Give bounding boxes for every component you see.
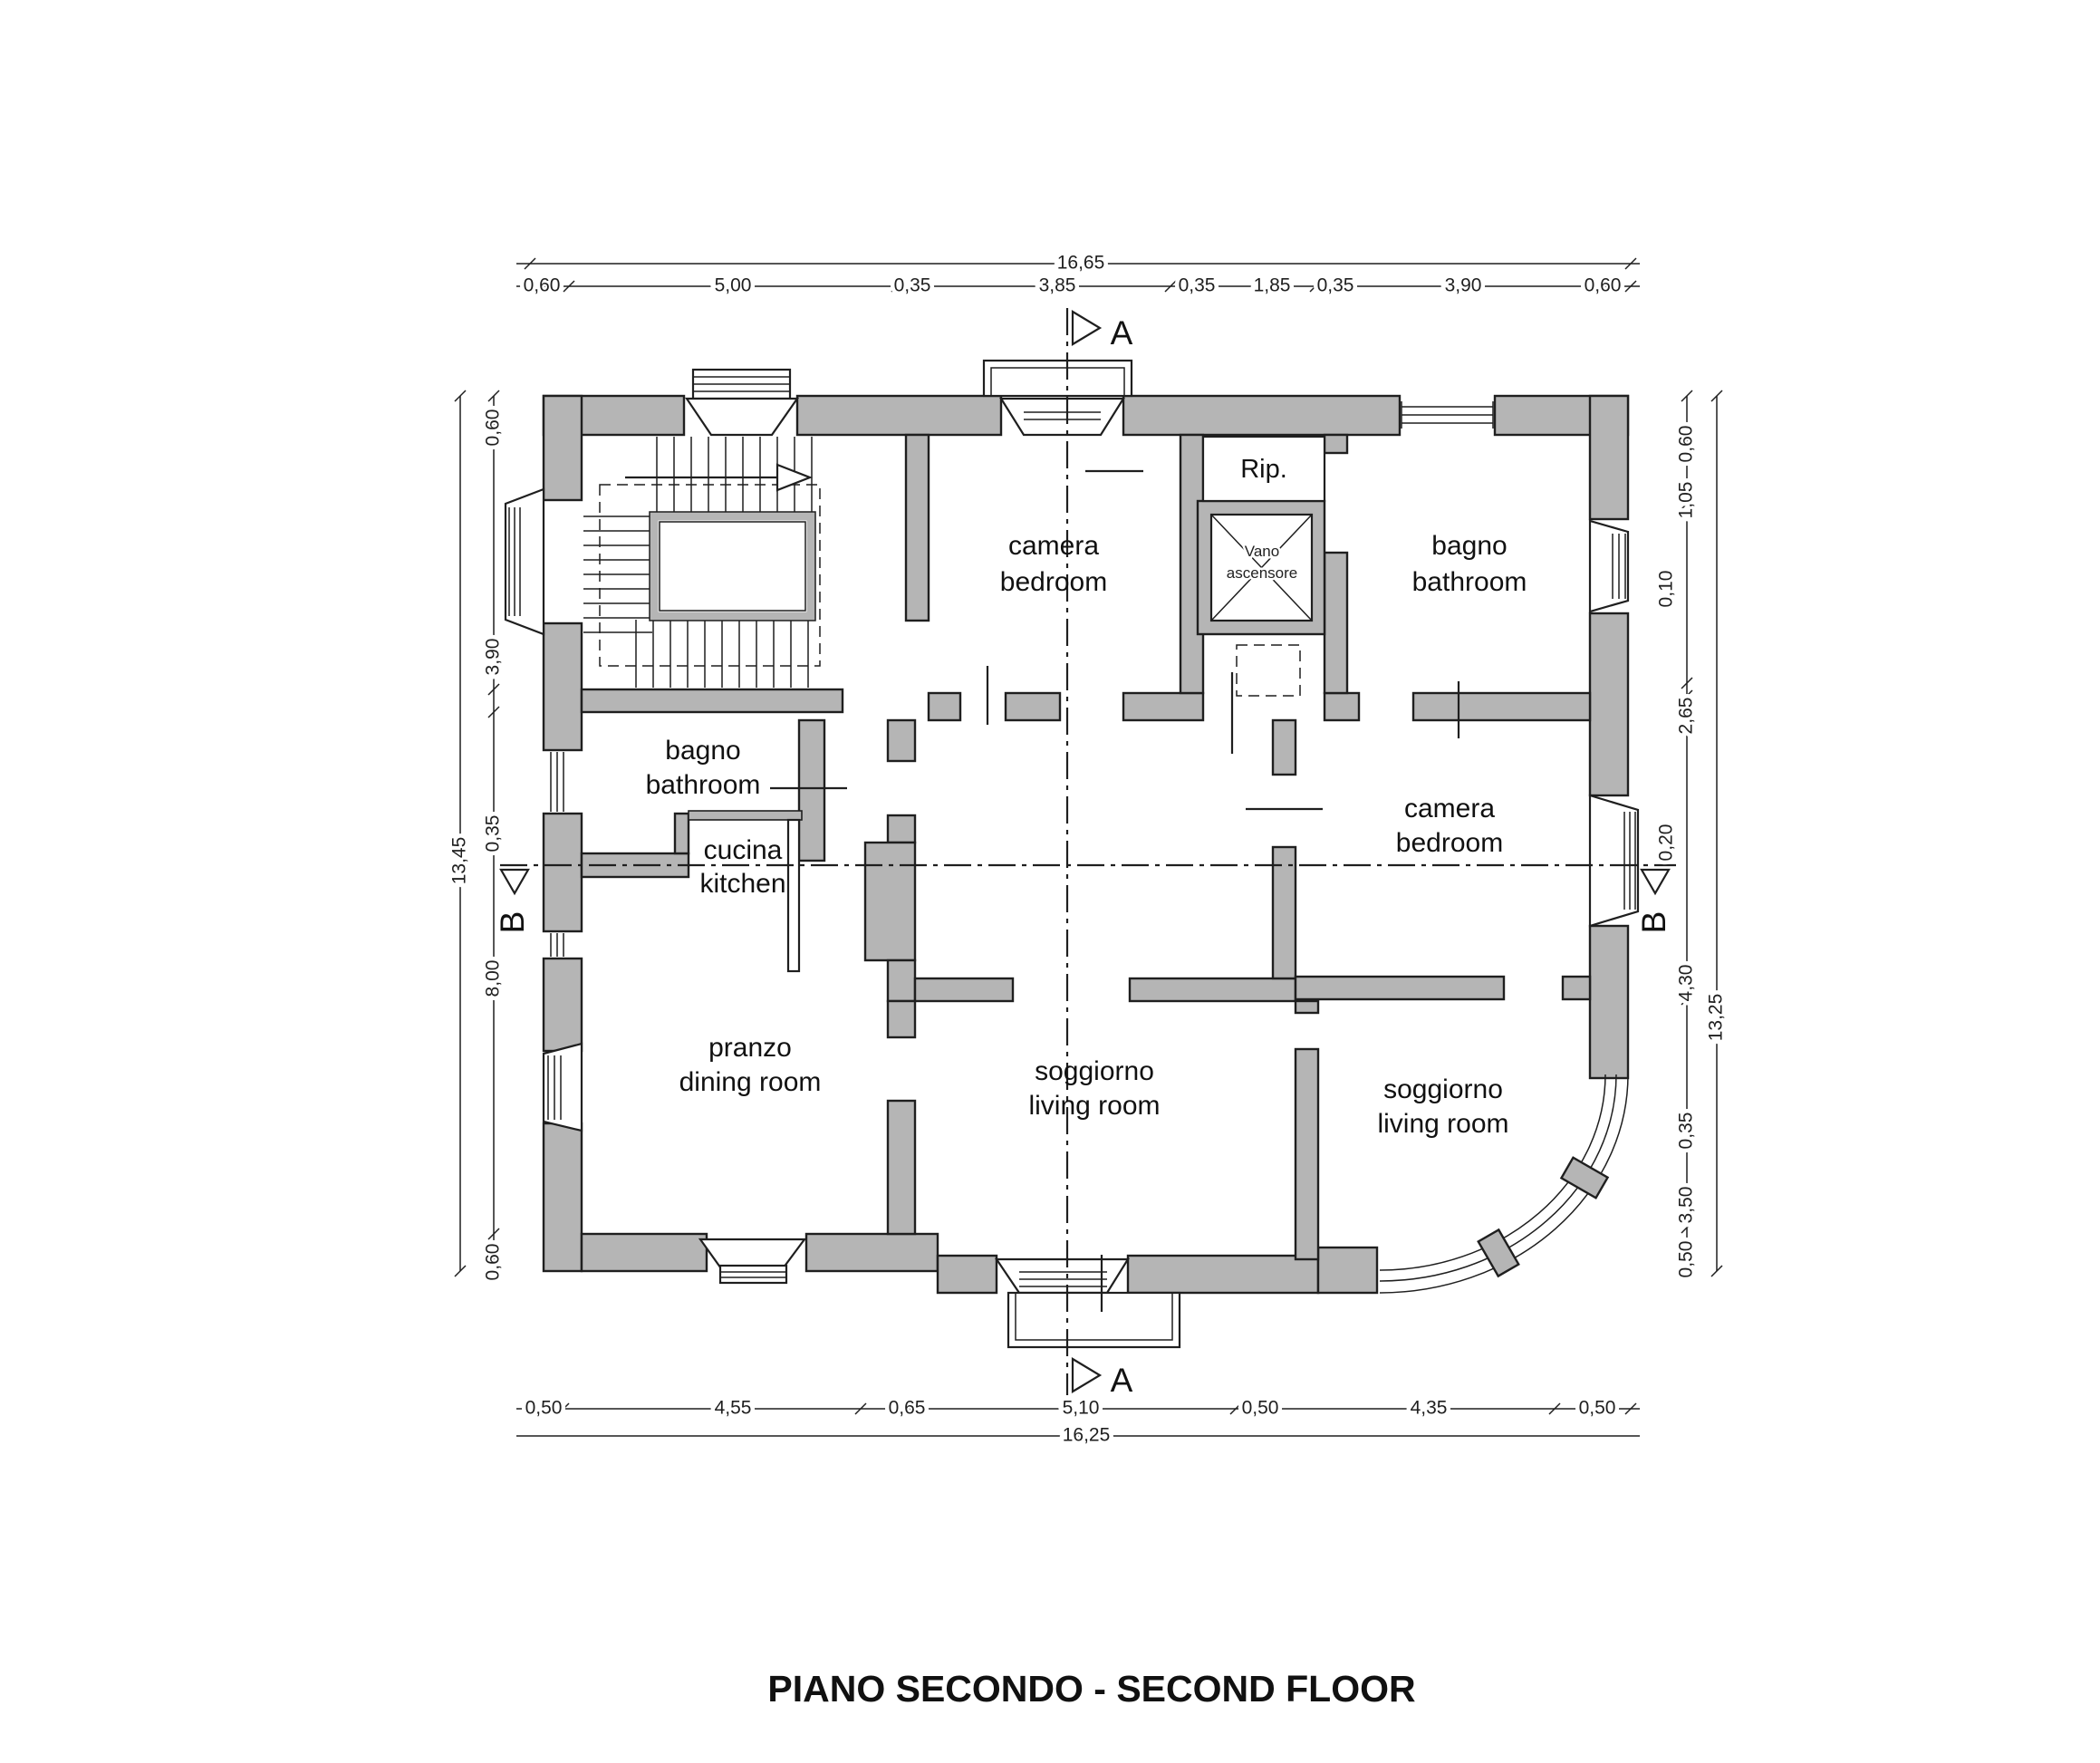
curved-glazed-wall bbox=[1380, 1074, 1628, 1293]
room-label-living-center-2: living room bbox=[1028, 1091, 1160, 1121]
dim-right-2: 0,10 bbox=[1656, 571, 1677, 608]
window-right-bathroom bbox=[1590, 521, 1628, 612]
section-label-b-right: B bbox=[1635, 911, 1672, 934]
top-balcony bbox=[984, 361, 1132, 396]
stair-arrow-icon bbox=[777, 465, 810, 490]
room-label-kitchen-2: kitchen bbox=[699, 869, 785, 899]
dim-top-0: 0,60 bbox=[524, 275, 561, 296]
elevator-pit-dashed-outline bbox=[1237, 645, 1300, 696]
dim-top-1: 5,00 bbox=[715, 275, 752, 296]
staircase bbox=[583, 437, 820, 688]
dim-right-8: 0,50 bbox=[1676, 1241, 1697, 1278]
dim-left-0: 0,60 bbox=[483, 409, 504, 447]
dimension-top: 16,65 0,60 5,00 0,35 3,85 0,35 1,85 0,35… bbox=[516, 253, 1640, 296]
storage-room-label: Rip. bbox=[1240, 455, 1287, 484]
dim-top-7: 3,90 bbox=[1445, 275, 1482, 296]
dim-bottom-total: 16,25 bbox=[1063, 1425, 1111, 1446]
room-label-bedroom-top-2: bedroom bbox=[1000, 567, 1107, 597]
room-label-living-right-2: living room bbox=[1377, 1109, 1508, 1139]
room-label-bathroom-right-2: bathroom bbox=[1412, 567, 1527, 597]
dim-bottom-6: 0,50 bbox=[1579, 1398, 1616, 1419]
dim-bottom-4: 0,50 bbox=[1242, 1398, 1279, 1419]
dim-left-2: 0,35 bbox=[483, 815, 504, 853]
room-label-bedroom-top-1: camera bbox=[1008, 531, 1099, 561]
room-label-bedroom-right-1: camera bbox=[1404, 794, 1495, 824]
dim-bottom-3: 5,10 bbox=[1063, 1398, 1100, 1419]
dim-left-4: 0,60 bbox=[483, 1244, 504, 1281]
dim-bottom-2: 0,65 bbox=[889, 1398, 926, 1419]
sheet-title: PIANO SECONDO - SECOND FLOOR bbox=[767, 1668, 1415, 1710]
elevator-label-line2: ascensore bbox=[1227, 564, 1297, 582]
bay-window-stairs bbox=[506, 489, 544, 634]
window-left-dining bbox=[544, 1044, 582, 1131]
dim-left-total: 13,45 bbox=[449, 837, 470, 885]
section-arrow-b-left-icon bbox=[501, 870, 528, 893]
section-arrow-a-top-icon bbox=[1073, 312, 1100, 344]
elevator-shaft: Rip. Vano ascensore bbox=[1198, 437, 1325, 696]
window-left-small bbox=[551, 933, 564, 957]
dim-top-2: 0,35 bbox=[894, 275, 931, 296]
dim-top-3: 3,85 bbox=[1039, 275, 1076, 296]
curved-wall-mullion bbox=[1561, 1158, 1607, 1199]
dim-right-6: 0,35 bbox=[1676, 1113, 1697, 1150]
dim-bottom-0: 0,50 bbox=[525, 1398, 563, 1419]
stairwell-void bbox=[654, 516, 811, 616]
dim-right-total: 13,25 bbox=[1706, 994, 1727, 1042]
dim-top-5: 1,85 bbox=[1254, 275, 1291, 296]
dim-bottom-5: 4,35 bbox=[1411, 1398, 1448, 1419]
section-label-b-left: B bbox=[494, 911, 531, 934]
dim-top-total: 16,65 bbox=[1057, 253, 1105, 274]
dim-bottom-1: 4,55 bbox=[715, 1398, 752, 1419]
dim-left-3: 8,00 bbox=[483, 960, 504, 997]
dim-top-6: 0,35 bbox=[1317, 275, 1354, 296]
elevator-label-line1: Vano bbox=[1245, 543, 1279, 560]
balcony-door bbox=[997, 1259, 1128, 1293]
window-left-bathroom bbox=[551, 752, 564, 812]
dim-top-4: 0,35 bbox=[1179, 275, 1216, 296]
room-label-living-right-1: soggiorno bbox=[1383, 1074, 1503, 1104]
dim-top-8: 0,60 bbox=[1585, 275, 1622, 296]
dim-right-7: 3,50 bbox=[1676, 1187, 1697, 1224]
room-label-bathroom-left-2: bathroom bbox=[646, 770, 761, 800]
dimension-bottom: 0,50 4,55 0,65 5,10 0,50 4,35 0,50 16,25 bbox=[516, 1398, 1640, 1446]
dim-right-0: 0,60 bbox=[1676, 426, 1697, 463]
room-label-dining-1: pranzo bbox=[708, 1033, 792, 1063]
dimension-right: 0,60 1,05 0,10 2,65 0,20 4,30 0,35 3,50 … bbox=[1656, 390, 1727, 1277]
dimension-left: 13,45 0,60 3,90 0,35 8,00 0,60 bbox=[449, 390, 504, 1280]
section-label-a-top: A bbox=[1111, 314, 1133, 352]
room-label-bathroom-left-1: bagno bbox=[665, 736, 740, 766]
dim-right-1: 1,05 bbox=[1676, 482, 1697, 519]
dim-right-5: 4,30 bbox=[1676, 965, 1697, 1002]
window-top-bathroom bbox=[1402, 401, 1493, 429]
room-label-bathroom-right-1: bagno bbox=[1431, 531, 1507, 561]
section-arrow-b-right-icon bbox=[1642, 870, 1669, 893]
floor-plan-drawing: Rip. Vano ascensore bbox=[0, 0, 2100, 1763]
dim-right-3: 2,65 bbox=[1676, 698, 1697, 735]
section-arrow-a-bottom-icon bbox=[1073, 1359, 1100, 1392]
curved-wall-mullion bbox=[1479, 1229, 1519, 1276]
room-label-living-center-1: soggiorno bbox=[1035, 1056, 1154, 1086]
bottom-balcony bbox=[1008, 1293, 1180, 1347]
section-label-a-bottom: A bbox=[1111, 1362, 1133, 1399]
room-label-dining-2: dining room bbox=[679, 1067, 822, 1097]
room-labels: camera bedroom bagno bathroom bagno bath… bbox=[646, 531, 1527, 1139]
dim-left-1: 3,90 bbox=[483, 639, 504, 676]
room-label-bedroom-right-2: bedroom bbox=[1396, 828, 1503, 858]
bay-window-right-bedroom bbox=[1590, 795, 1638, 926]
dim-right-4: 0,20 bbox=[1656, 824, 1677, 862]
floor-plan-sheet: Rip. Vano ascensore bbox=[0, 0, 2100, 1763]
room-label-kitchen-1: cucina bbox=[704, 835, 783, 865]
